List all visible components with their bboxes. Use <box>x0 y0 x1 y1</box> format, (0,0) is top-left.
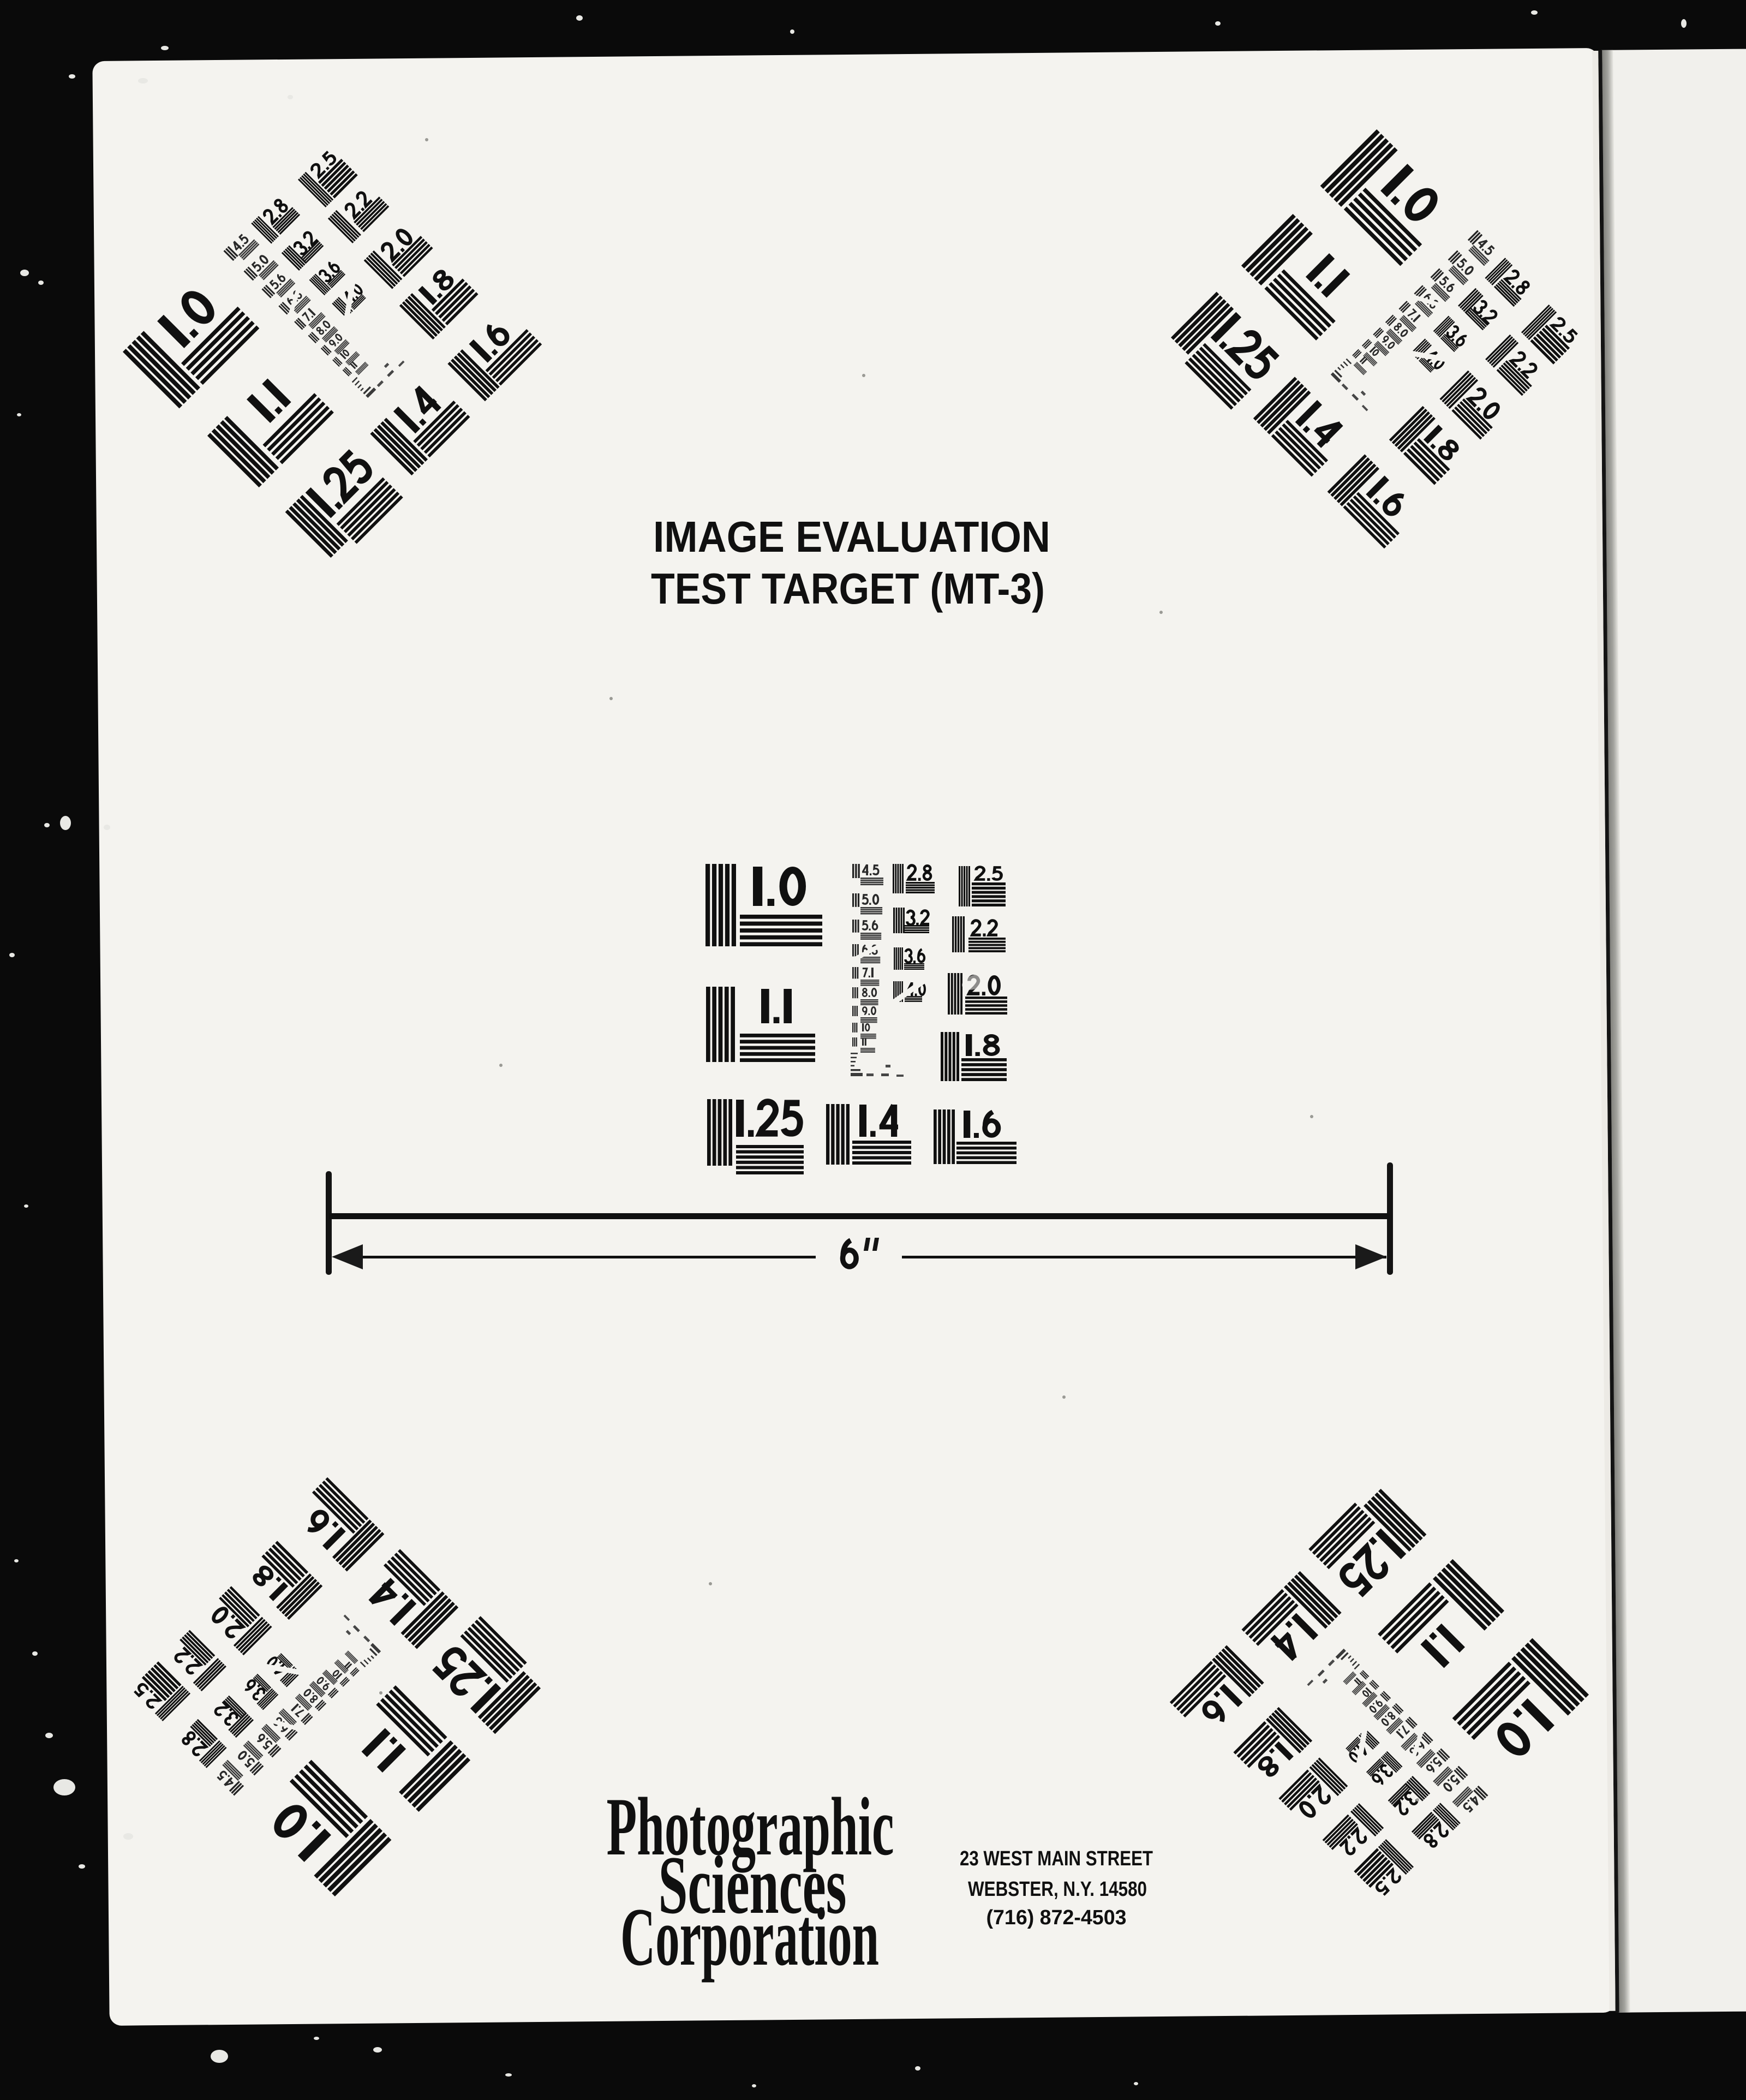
svg-text:(716) 872-4503: (716) 872-4503 <box>986 1906 1127 1929</box>
svg-text:IMAGE EVALUATION: IMAGE EVALUATION <box>653 512 1050 561</box>
svg-text:23 WEST MAIN STREET: 23 WEST MAIN STREET <box>960 1847 1153 1870</box>
svg-text:TEST TARGET (MT-3): TEST TARGET (MT-3) <box>651 564 1045 613</box>
svg-text:WEBSTER, N.Y. 14580: WEBSTER, N.Y. 14580 <box>968 1878 1147 1901</box>
svg-text:Corporation: Corporation <box>620 1891 879 1983</box>
